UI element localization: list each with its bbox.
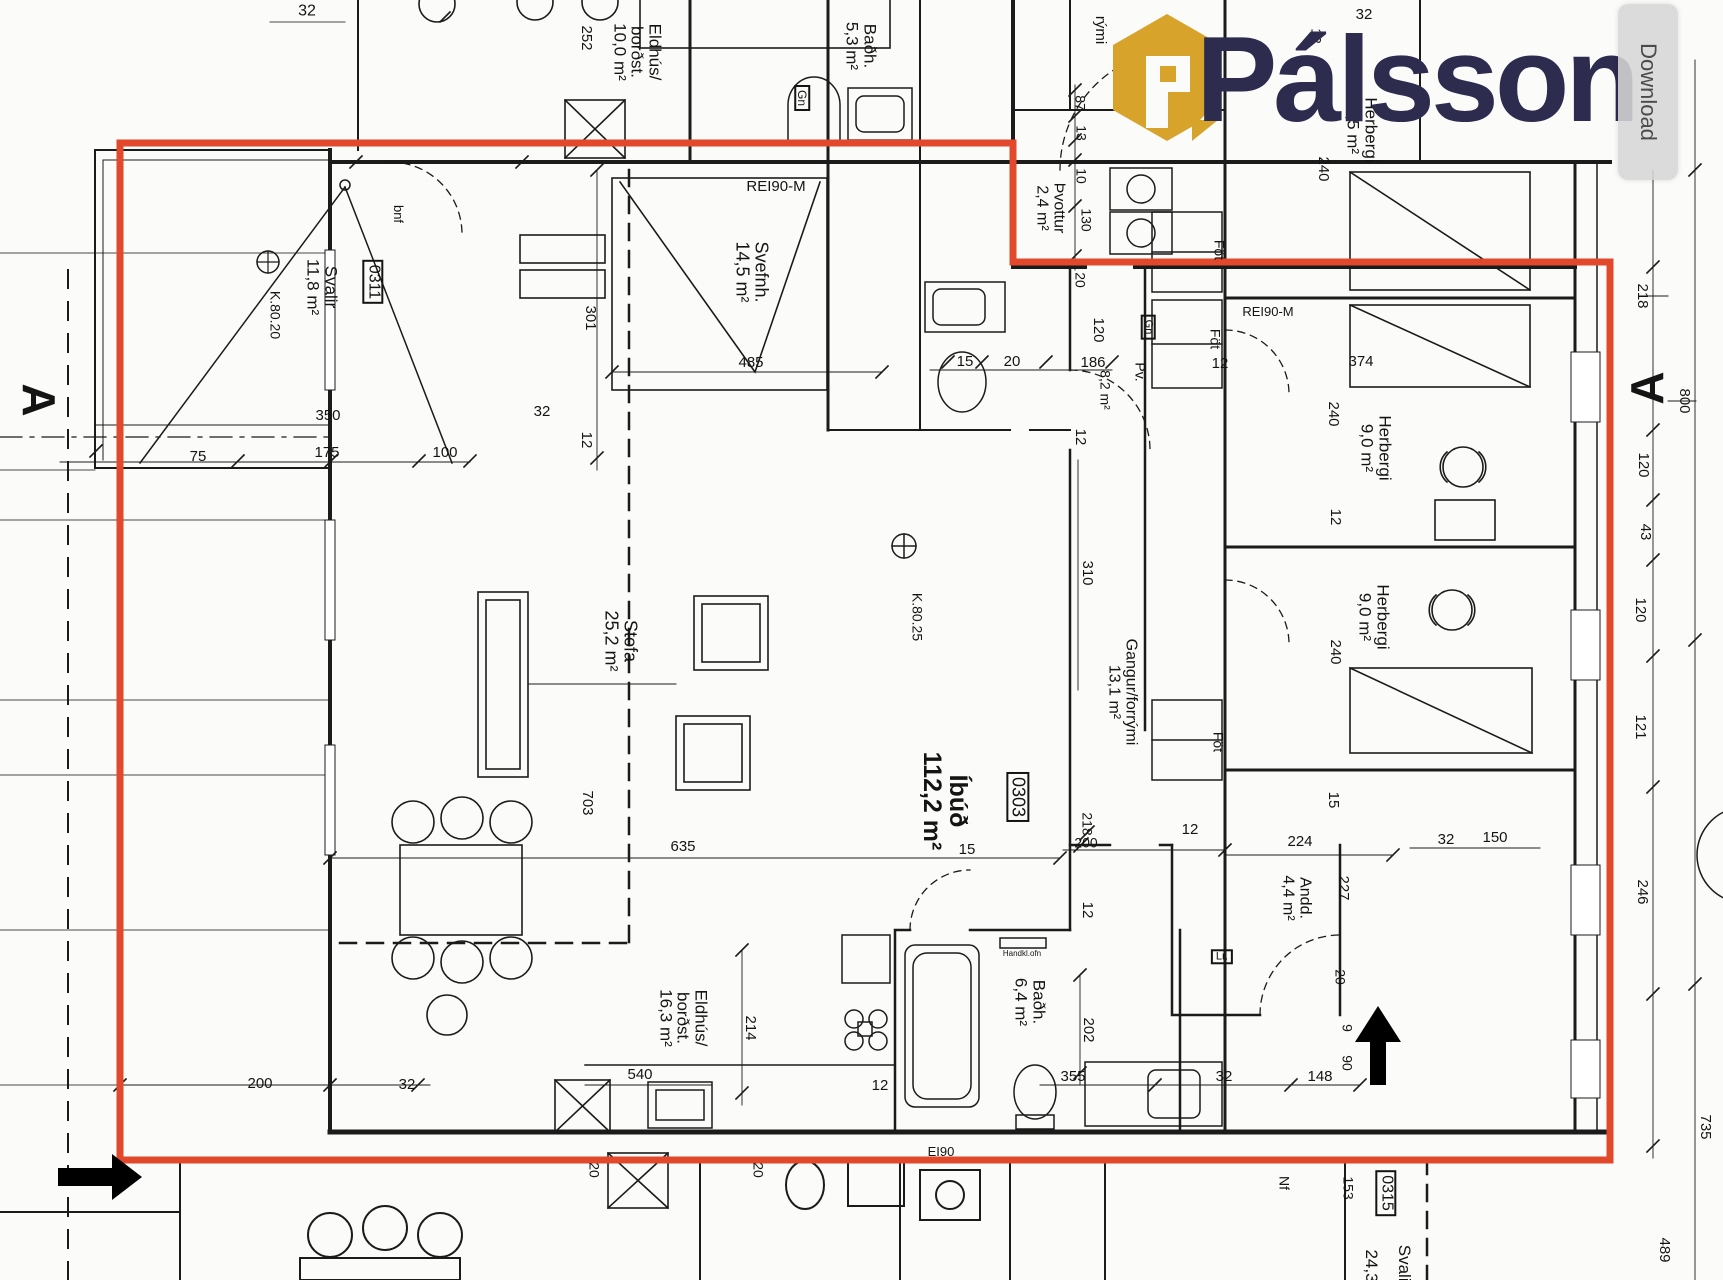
plan-label: REI90-M <box>746 179 805 195</box>
plan-label: bnf <box>391 205 405 223</box>
plan-label: 12 <box>1072 429 1088 446</box>
plan-label: Baðh. 5,3 m² <box>843 22 878 70</box>
plan-label: 120 <box>1090 317 1106 342</box>
plan-labels-layer: 32252Eldhús/ borðst. 10,0 m²Baðh. 5,3 m²… <box>0 0 1723 1280</box>
unit-code-label: Gn <box>794 85 810 111</box>
plan-label: Handkl.ofn <box>1003 950 1041 958</box>
plan-label: 32 <box>298 4 316 21</box>
plan-label: 175 <box>314 445 339 461</box>
plan-label: A <box>1624 371 1672 404</box>
plan-label: 218 <box>1080 812 1095 835</box>
plan-label: 32 <box>1438 832 1455 848</box>
plan-label: 43 <box>1637 524 1653 541</box>
plan-label: K.80.25 <box>910 593 925 641</box>
plan-label: Föt <box>1208 329 1223 349</box>
plan-label: Eldhús/ borðst. 10,0 m² <box>610 23 663 81</box>
plan-label: K.80.20 <box>268 291 283 339</box>
plan-label: Íbúð 112,2 m² <box>919 752 971 851</box>
plan-label: 202 <box>1080 1017 1096 1042</box>
plan-label: Svefnh. 14,5 m² <box>733 241 770 302</box>
plan-label: 87 <box>1073 95 1088 111</box>
plan-label: 32 <box>534 404 551 420</box>
plan-label: 735 <box>1697 1114 1713 1139</box>
plan-label: 214 <box>742 1015 758 1040</box>
plan-label: 153 <box>1341 1176 1356 1199</box>
brand-watermark: Pálsson <box>1196 18 1636 140</box>
plan-label: 200 <box>247 1076 272 1092</box>
plan-label: 635 <box>670 839 695 855</box>
plan-label: 13 <box>1074 125 1089 141</box>
plan-label: 355 <box>1060 1069 1085 1085</box>
plan-label: Herbergi 9,0 m² <box>1358 415 1393 480</box>
plan-label: Eldhús/ borðst. 16,3 m² <box>656 989 709 1047</box>
plan-label: 374 <box>1348 354 1373 370</box>
plan-label: 246 <box>1634 879 1650 904</box>
plan-label: 75 <box>190 449 207 465</box>
plan-label: 15 <box>1325 792 1341 809</box>
plan-label: Andd. 4,4 m² <box>1279 875 1312 920</box>
plan-label: 9 <box>1340 1024 1355 1032</box>
unit-code-label: Lr. <box>1211 949 1233 964</box>
plan-label: 800 <box>1676 388 1692 413</box>
plan-label: 350 <box>315 408 340 424</box>
plan-label: 148 <box>1307 1069 1332 1085</box>
download-button-label: Download <box>1635 43 1661 141</box>
plan-label: A <box>14 383 62 416</box>
plan-label: Gangur/forrými 13,1 m² <box>1105 639 1138 746</box>
plan-label: 227 <box>1335 875 1351 900</box>
plan-label: 20 <box>1004 354 1021 370</box>
plan-label: Pv. <box>1133 362 1148 381</box>
plan-label: 240 <box>1325 401 1341 426</box>
plan-label: 218 <box>1634 283 1650 308</box>
plan-label: Svalir 11,8 m² <box>304 259 339 315</box>
plan-label: 200 <box>1074 836 1097 851</box>
plan-label: 12 <box>1212 356 1229 372</box>
unit-code-label: 0303 <box>1007 772 1030 822</box>
plan-label: 130 <box>1079 208 1094 231</box>
plan-label: 10 <box>1074 168 1089 184</box>
plan-label: Baðh. 6,4 m² <box>1012 978 1047 1026</box>
plan-label: 15 <box>959 842 976 858</box>
plan-label: 120 <box>1632 597 1648 622</box>
plan-label: Nf <box>1277 1176 1292 1190</box>
plan-label: 121 <box>1632 714 1648 739</box>
plan-label: Herbergi 9,0 m² <box>1356 584 1391 649</box>
plan-label: 12 <box>578 432 594 449</box>
plan-label: 120 <box>1635 452 1651 477</box>
plan-label: REI90-M <box>1242 305 1293 319</box>
plan-label: 12 <box>1079 902 1095 919</box>
plan-label: Stofa 25,2 m² <box>602 610 639 671</box>
unit-code-label: 0315 <box>1376 1170 1397 1216</box>
plan-label: 240 <box>1315 156 1331 181</box>
plan-label: Föt <box>1211 732 1226 752</box>
plan-label: 12 <box>872 1078 889 1094</box>
plan-label: 24,3 <box>1362 1249 1380 1280</box>
plan-label: 150 <box>1482 830 1507 846</box>
plan-label: 301 <box>582 305 598 330</box>
plan-label: EI90 <box>928 1145 955 1159</box>
plan-label: Þvottur 2,4 m² <box>1033 183 1066 234</box>
plan-label: 20 <box>751 1162 766 1178</box>
plan-label: 12 <box>1327 509 1343 526</box>
download-button[interactable]: Download <box>1618 4 1678 180</box>
floorplan-viewer: 32252Eldhús/ borðst. 10,0 m²Baðh. 5,3 m²… <box>0 0 1723 1280</box>
plan-label: 32 <box>399 1077 416 1093</box>
plan-label: 485 <box>738 355 763 371</box>
plan-label: 703 <box>579 790 595 815</box>
unit-code-label: Gn <box>1140 315 1155 340</box>
plan-label: 32 <box>1216 1069 1233 1085</box>
plan-label: 8,2 m² <box>1098 370 1113 410</box>
unit-code-label: 0311 <box>363 260 384 304</box>
plan-label: 240 <box>1327 639 1343 664</box>
plan-label: 20 <box>1333 969 1348 985</box>
plan-label: 540 <box>627 1067 652 1083</box>
plan-label: 20 <box>587 1162 602 1178</box>
plan-label: Föt <box>1212 240 1227 260</box>
plan-label: 100 <box>432 445 457 461</box>
plan-label: 20 <box>1073 272 1088 288</box>
plan-label: 90 <box>1340 1055 1355 1071</box>
plan-label: 224 <box>1287 834 1312 850</box>
plan-label: 310 <box>1079 560 1095 585</box>
plan-label: 489 <box>1656 1237 1672 1262</box>
plan-label: Svalir <box>1395 1245 1413 1280</box>
plan-label: 252 <box>578 25 594 50</box>
plan-label: rými <box>1092 16 1108 44</box>
plan-label: 186 <box>1080 355 1105 371</box>
plan-label: 15 <box>957 354 974 370</box>
plan-label: 12 <box>1182 822 1199 838</box>
